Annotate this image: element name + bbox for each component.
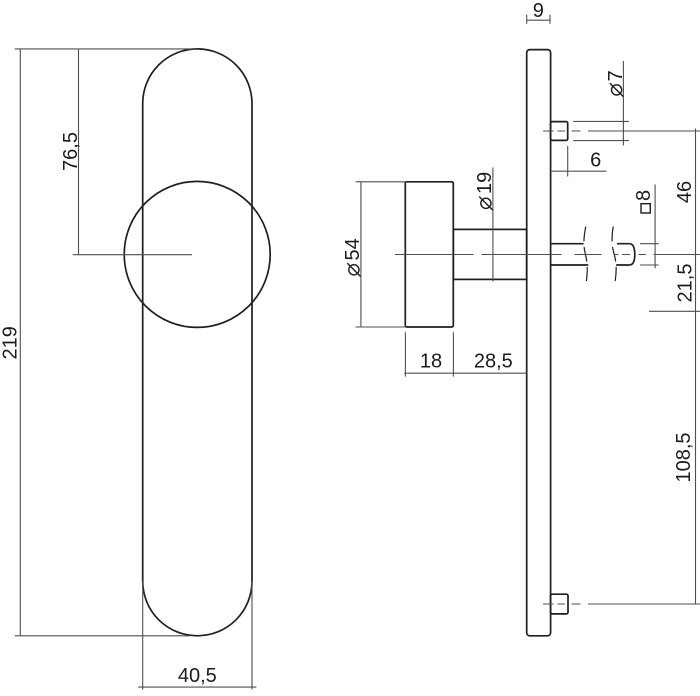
svg-text:6: 6 [590,150,601,172]
svg-text:19: 19 [474,172,496,194]
svg-text:219: 219 [0,326,22,359]
svg-text:21,5: 21,5 [675,264,697,303]
svg-text:108,5: 108,5 [673,432,695,482]
svg-text:54: 54 [342,238,364,260]
svg-text:28,5: 28,5 [474,351,513,373]
svg-text:9: 9 [533,0,544,22]
svg-text:46: 46 [674,181,696,203]
svg-text:8: 8 [633,190,655,201]
svg-text:7: 7 [605,70,627,81]
svg-text:76,5: 76,5 [60,132,82,171]
svg-text:18: 18 [420,351,442,373]
svg-text:40,5: 40,5 [178,665,217,687]
